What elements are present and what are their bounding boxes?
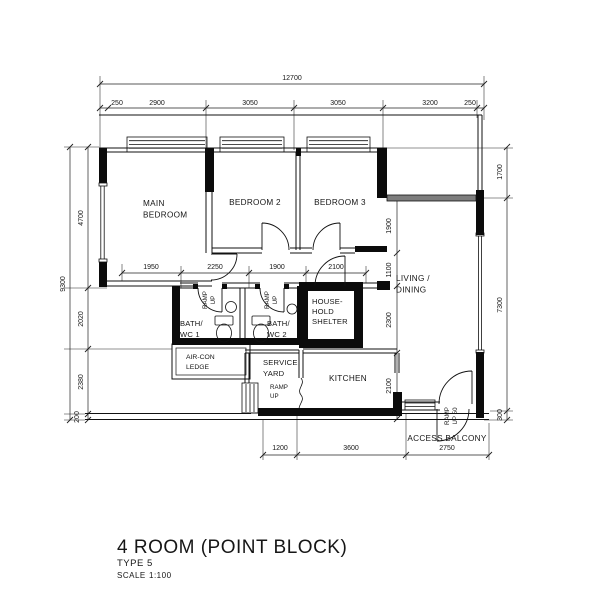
dim-top-overall: 12700 <box>282 75 302 82</box>
label-kitchen: KITCHEN <box>329 374 367 383</box>
label-bath-wc2-line2: WC 2 <box>267 330 287 339</box>
dim-top-2: 3050 <box>242 100 258 107</box>
label-ramp-bath1-line2: UP <box>210 296 217 305</box>
plan-scale-value: 1:100 <box>149 571 172 580</box>
window-main-bedroom-top-lines <box>129 141 205 149</box>
floorplan-page: MAIN BEDROOM BEDROOM 2 BEDROOM 3 LIVING … <box>0 0 613 600</box>
label-living-dining-line1: LIVING / <box>396 274 430 283</box>
dim-inner-h-3: 2100 <box>328 264 344 271</box>
dim-inner-v-3: 2100 <box>386 378 393 394</box>
dim-left-3: 200 <box>74 411 81 423</box>
dim-left-overall: 9300 <box>60 276 67 292</box>
door-bedroom2 <box>262 223 289 250</box>
window-service-yard-louvre-lines <box>246 384 254 412</box>
dimension-lines <box>64 76 513 460</box>
dim-inner-h-2: 1900 <box>269 264 285 271</box>
label-ramp-bath2-line1: RAMP <box>264 291 271 309</box>
dim-bottom-0: 1200 <box>272 445 288 452</box>
dim-inner-h-1: 2250 <box>207 264 223 271</box>
wall-right-upper <box>476 190 484 235</box>
wall-kitchen-south <box>258 408 400 416</box>
basin-bath2 <box>287 304 297 314</box>
label-ramp-service-yard-line1: RAMP <box>270 384 288 391</box>
wall-b3-east <box>377 148 387 198</box>
label-bedroom-2: BEDROOM 2 <box>229 198 281 207</box>
dim-inner-v-2: 2300 <box>386 312 393 328</box>
plan-scale-label: SCALE <box>117 571 146 580</box>
dim-extension-lines <box>64 76 513 460</box>
plan-type: TYPE 5 <box>117 558 153 569</box>
label-living-dining-line2: DINING <box>396 286 426 295</box>
dim-tick-marks <box>67 81 510 458</box>
wall-post-mb-b2 <box>205 148 214 192</box>
label-bath-wc2-line1: BATH/ <box>267 319 290 328</box>
door-bedroom3 <box>313 223 340 250</box>
label-ramp-bath1-line1: RAMP <box>202 291 209 309</box>
wall-living-north <box>387 195 476 201</box>
label-bath-wc1-line2: WC 1 <box>180 330 200 339</box>
dim-right-2: 300 <box>497 409 504 421</box>
label-bath-wc1-line1: BATH/ <box>180 319 203 328</box>
wall-right-lower <box>476 352 484 418</box>
window-bedroom2-top-lines <box>222 141 282 149</box>
door-jamb-bath1-left <box>193 284 198 289</box>
dim-top-4: 3200 <box>422 100 438 107</box>
dim-inner-v-0: 1900 <box>386 218 393 234</box>
dim-top-5: 250 <box>464 100 476 107</box>
label-ramp-bath2-line2: UP <box>272 296 279 305</box>
label-aircon-ledge-line2: LEDGE <box>186 364 210 371</box>
basin-bath1 <box>226 302 237 313</box>
label-household-shelter-line2: HOLD <box>312 307 334 316</box>
dim-right-1: 7300 <box>497 297 504 313</box>
window-main-bedroom-left-cap-bottom <box>99 259 107 262</box>
window-living-east-lines <box>479 236 482 350</box>
wall-left-lower <box>99 262 107 287</box>
label-ramp-entrance-line1: RAMP <box>444 407 451 425</box>
dim-left-2: 2380 <box>78 374 85 390</box>
aircon-ledge-outline <box>172 344 250 379</box>
label-bedroom-3: BEDROOM 3 <box>314 198 366 207</box>
label-ramp-service-yard-line2: UP <box>270 393 279 400</box>
dim-top-0: 250 <box>111 100 123 107</box>
dim-inner-h-0: 1950 <box>143 264 159 271</box>
dim-bottom-2: 2750 <box>439 445 455 452</box>
window-bedroom3-top-lines <box>309 141 368 149</box>
dim-bottom-1: 3600 <box>343 445 359 452</box>
dim-left-0: 4700 <box>78 210 85 226</box>
door-household-shelter <box>315 256 345 286</box>
wall-column-living <box>377 281 390 290</box>
floorplan-drawing: MAIN BEDROOM BEDROOM 2 BEDROOM 3 LIVING … <box>0 0 613 600</box>
label-service-yard-line2: YARD <box>263 369 285 378</box>
dim-left-1: 2020 <box>78 311 85 327</box>
door-jamb-bath2-left <box>255 284 260 289</box>
door-jamb-bath2-right <box>284 284 289 289</box>
window-main-bedroom-left-cap-top <box>99 183 107 186</box>
door-main-entrance <box>439 371 472 404</box>
label-ramp-entrance-line2: UP 50 <box>452 407 459 425</box>
door-jamb-bath1-right <box>222 284 227 289</box>
dim-chain-lines <box>70 84 507 455</box>
dim-right-0: 1700 <box>497 164 504 180</box>
dim-top-1: 2900 <box>149 100 165 107</box>
wall-bath-south <box>172 338 303 345</box>
service-yard-break-line <box>299 378 302 413</box>
dim-top-3: 3050 <box>330 100 346 107</box>
label-aircon-ledge-line1: AIR-CON <box>186 354 215 361</box>
wall-bath1-west <box>172 286 180 343</box>
label-service-yard-line1: SERVICE <box>263 358 298 367</box>
window-main-bedroom-left-lines <box>101 186 104 259</box>
label-household-shelter-line3: SHELTER <box>312 317 348 326</box>
wall-post-b2-b3 <box>296 148 301 156</box>
label-main-bedroom-line2: BEDROOM <box>143 211 187 220</box>
wall-left-upper <box>99 148 107 183</box>
dim-inner-v-1: 1100 <box>386 262 393 277</box>
wall-kitchen-east <box>393 392 402 416</box>
dimension-labels: 12700 250 2900 3050 3050 3200 250 9300 4… <box>60 75 504 452</box>
window-entrance-side-lines <box>405 403 435 407</box>
label-main-bedroom-line1: MAIN <box>143 199 165 208</box>
title-block: 4 ROOM (POINT BLOCK) TYPE 5 SCALE 1:100 <box>117 537 347 580</box>
wall-b3-south <box>355 246 387 252</box>
label-access-balcony: ACCESS BALCONY <box>407 434 487 443</box>
label-household-shelter-line1: HOUSE- <box>312 297 343 306</box>
plan-title: 4 ROOM (POINT BLOCK) <box>117 537 347 558</box>
